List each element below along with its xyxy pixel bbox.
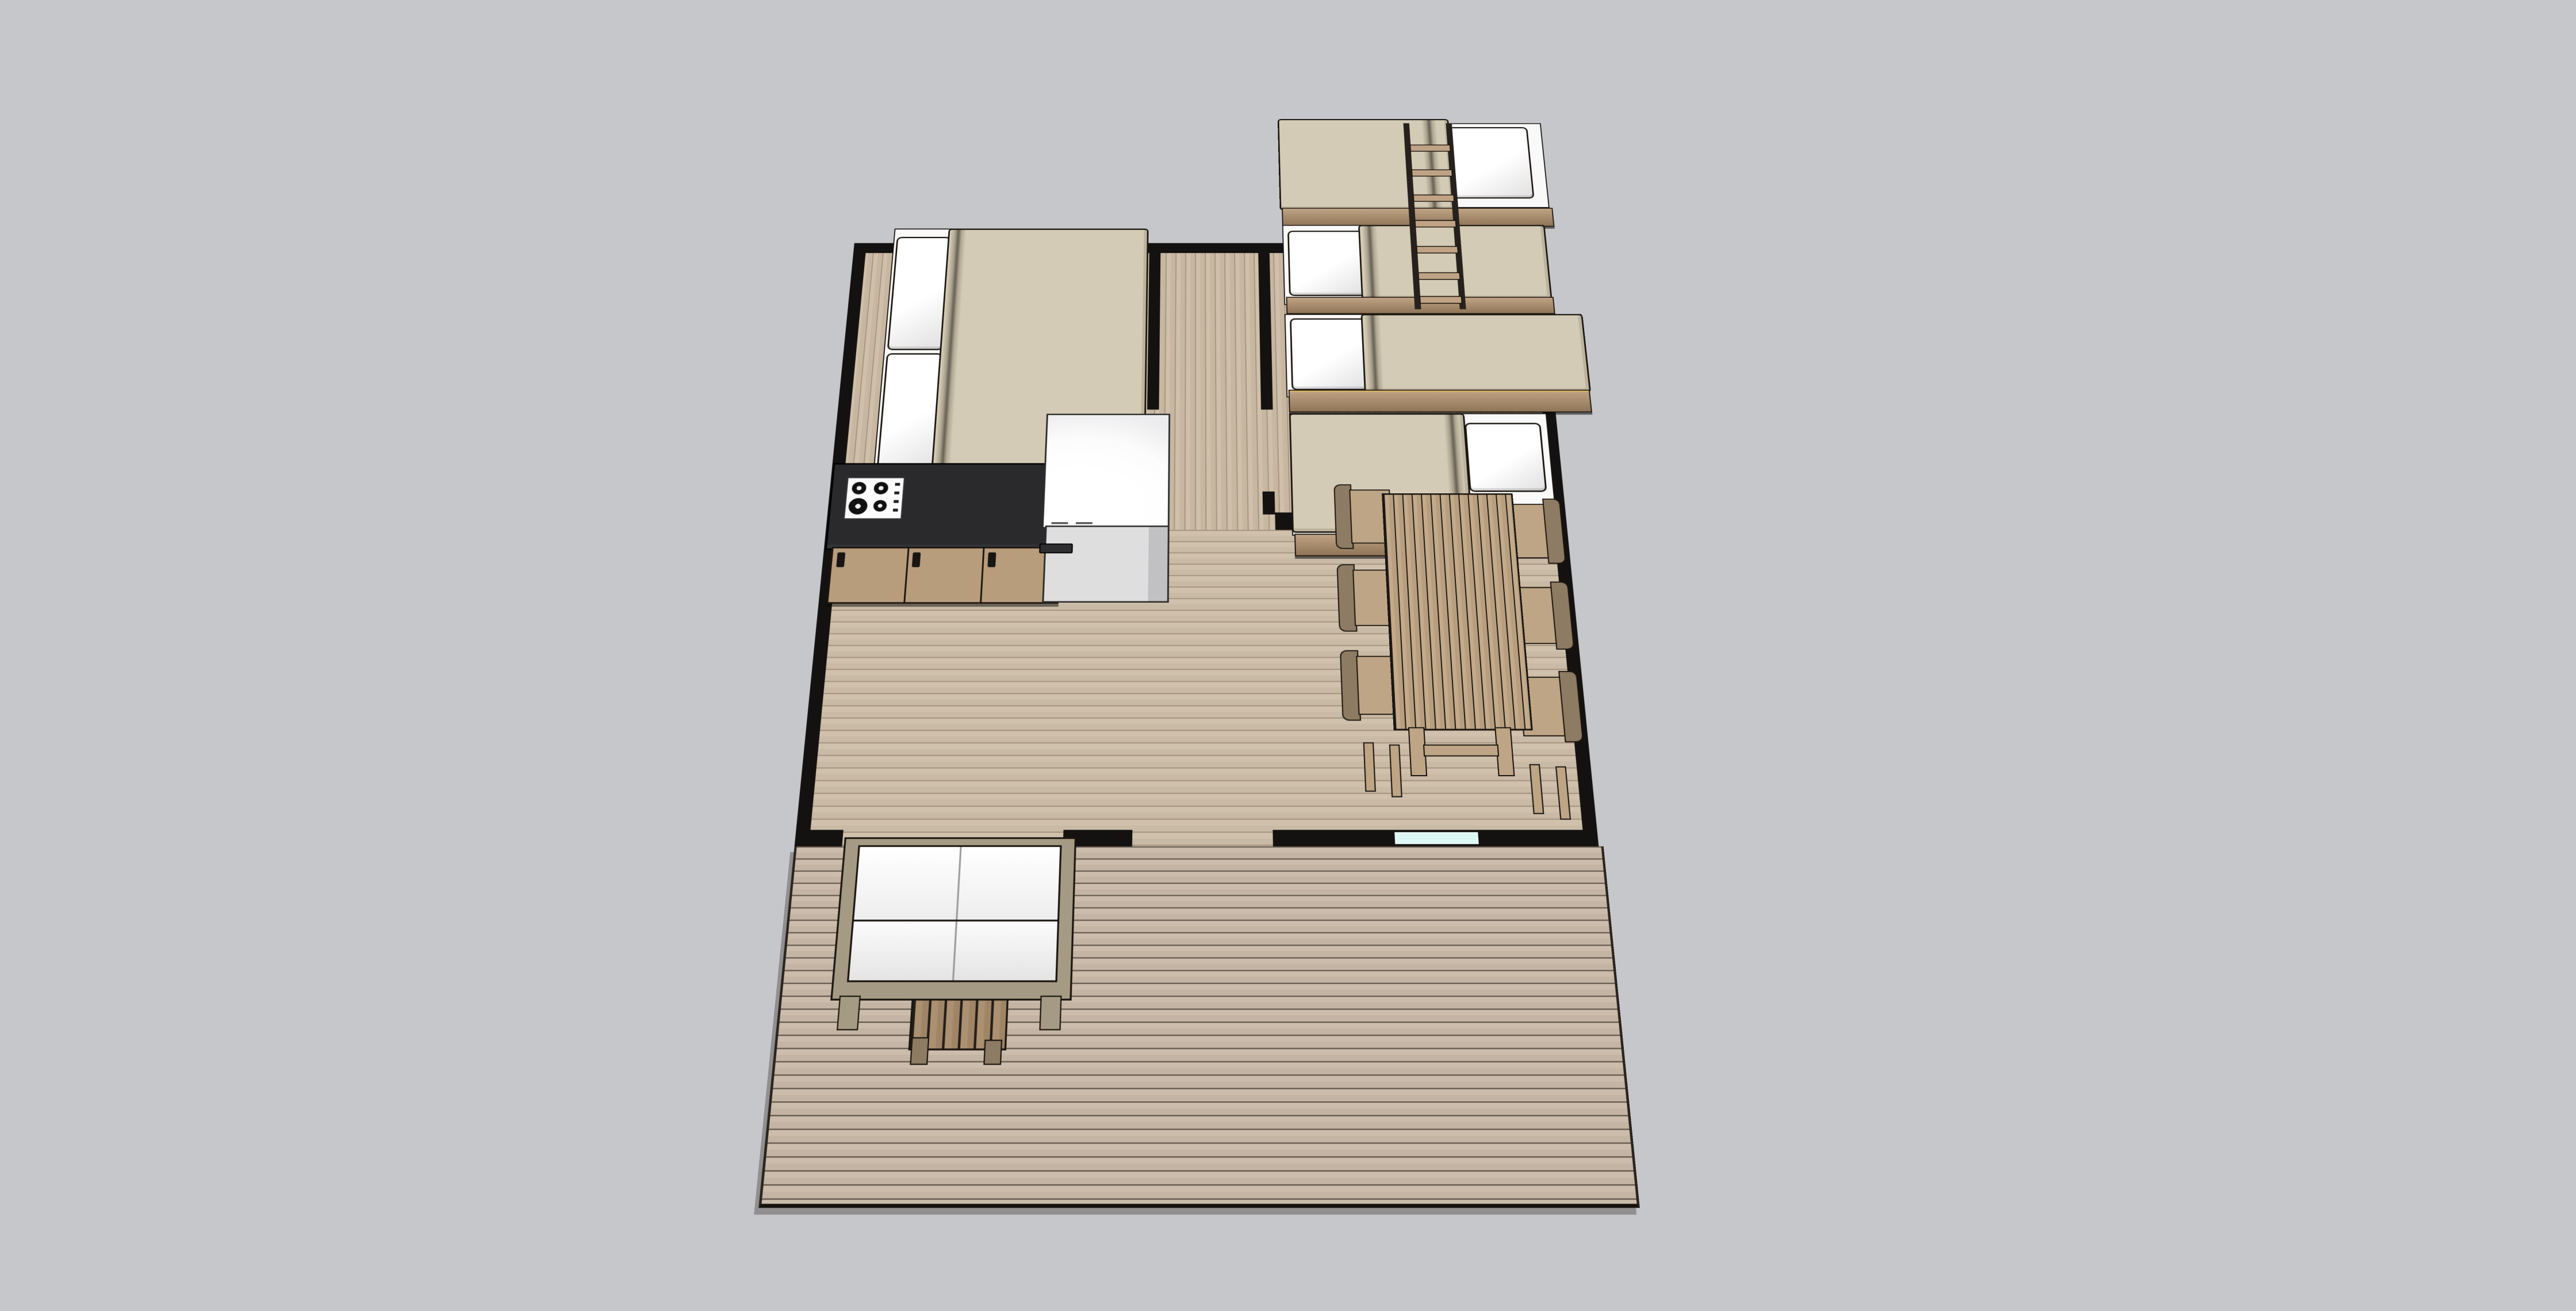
hallway-wall-left[interactable] — [1147, 253, 1160, 409]
gas-cooktop[interactable] — [844, 477, 905, 519]
ladder-rung — [1409, 144, 1451, 151]
control-knob — [894, 492, 899, 494]
model-viewport[interactable] — [0, 0, 2576, 1311]
ladder-rung — [1413, 194, 1455, 202]
pillow — [1465, 423, 1547, 492]
ladder-rung — [1414, 220, 1457, 228]
floor-plan-3d-view[interactable] — [759, 243, 1634, 1204]
refrigerator-top — [1042, 414, 1170, 529]
front-window-glass[interactable] — [1394, 832, 1478, 844]
cushion-seam — [956, 847, 962, 922]
control-knob — [895, 483, 900, 486]
burner — [873, 482, 889, 494]
upper-bunk-mattress — [1361, 314, 1592, 392]
appliance-side-face — [1148, 527, 1167, 601]
vent — [1076, 522, 1092, 524]
cabinet-divider — [980, 549, 984, 602]
front-wall-stub[interactable] — [809, 830, 844, 846]
vent — [1052, 522, 1068, 524]
ladder-rung — [1416, 246, 1459, 254]
blanket-fold — [1362, 226, 1381, 298]
sofa-seat-cushions — [847, 919, 1059, 982]
table-stretcher — [1423, 745, 1499, 757]
side-table-leg — [910, 1037, 929, 1065]
sofa[interactable] — [831, 837, 1073, 997]
hallway-wall-right-lower[interactable] — [1263, 492, 1275, 515]
pillow — [1290, 319, 1371, 390]
cabinet-handle — [912, 553, 921, 568]
cushion-seam — [952, 921, 957, 980]
front-wall-pier-3[interactable] — [1481, 830, 1585, 846]
island-cabinets[interactable] — [826, 547, 1060, 604]
sofa-leg — [1039, 996, 1061, 1030]
table-top — [1382, 493, 1533, 730]
kitchen-island[interactable] — [819, 463, 1067, 604]
side-table-leg — [983, 1040, 1002, 1065]
burner — [852, 482, 867, 494]
appliance-front — [1042, 526, 1169, 603]
ladder-rung — [1418, 273, 1461, 280]
dining-table[interactable] — [1382, 493, 1533, 774]
burner — [873, 500, 887, 512]
bunk-platform — [1289, 390, 1592, 412]
cabinet-handle — [987, 553, 996, 568]
ladder-rung — [1419, 296, 1462, 304]
appliance-handle — [1039, 543, 1073, 553]
front-wall-pier-2[interactable] — [1272, 830, 1392, 846]
refrigerator-unit[interactable] — [1039, 414, 1167, 600]
sofa-back-cushions — [852, 845, 1061, 923]
cabinet-divider — [903, 549, 909, 602]
chair-leg — [1363, 742, 1376, 792]
ladder-rung — [1411, 170, 1452, 177]
pillow — [1287, 231, 1367, 296]
control-knob — [894, 500, 899, 503]
cabinet-handle — [836, 553, 845, 568]
sofa-leg — [837, 996, 861, 1030]
pillow — [1444, 127, 1535, 198]
control-knob — [893, 509, 898, 512]
blanket-fold — [1364, 315, 1384, 391]
burner-large — [848, 498, 868, 514]
